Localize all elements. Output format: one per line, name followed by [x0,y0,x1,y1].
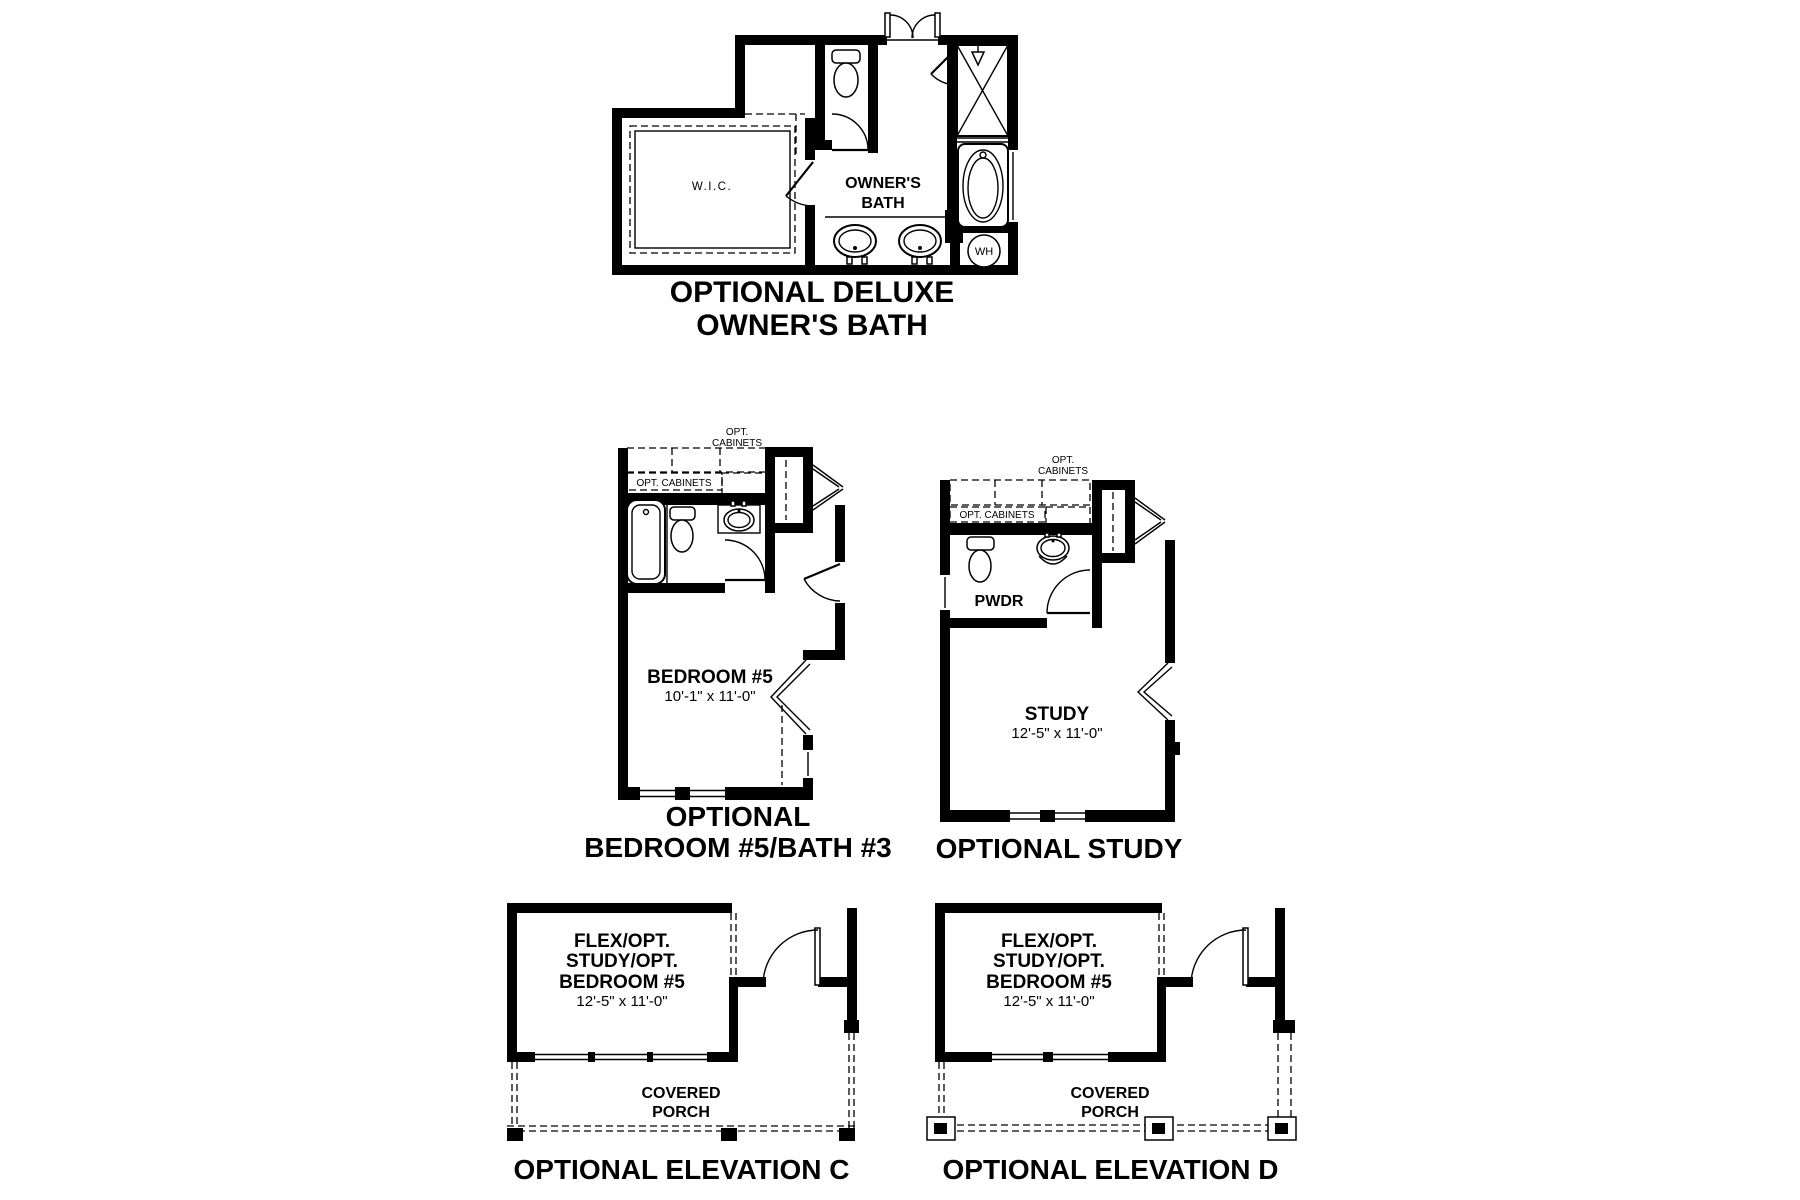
covered-porch-label-line1: COVERED [641,1085,720,1102]
bath3-sink [718,501,760,533]
toilet-room-door [832,114,868,150]
water-heater-label: WH [975,246,993,258]
flex-room-label-line2: STUDY/OPT. [993,951,1105,972]
flex-room-label-line3: BEDROOM #5 [986,972,1112,993]
double-entry-door [885,13,940,40]
pwdr-door [1047,570,1090,613]
wic-label: W.I.C. [692,181,732,193]
pwdr-toilet [967,537,994,582]
flex-room-label-line3: BEDROOM #5 [559,972,685,993]
flex-room-dims: 12'-5" x 11'-0" [576,993,667,1010]
bedroom-entry-door [804,564,840,601]
flex-room-windows [535,1052,707,1062]
garden-tub [957,138,1008,227]
cased-opening-dashed [731,913,736,977]
bedroom5-room-label: BEDROOM #5 [647,667,773,688]
opt-cabinets-label-line1: OPT. [1052,455,1074,466]
pwdr-label: PWDR [975,593,1024,610]
opt-cabinets-label-line2: CABINETS [712,438,762,449]
opt-cabinets-inline-label: OPT. CABINETS [959,510,1034,521]
covered-porch-label-line1: COVERED [1070,1085,1149,1102]
bay-window-zigzag [1138,663,1172,720]
bedroom5-room-dims: 10'-1" x 11'-0" [664,688,755,705]
tub-side-window [1008,150,1018,222]
double-chevron-door [1135,498,1165,544]
bedroom5-bath3-plan-drawing: OPT. CABINETS OPT. CABINETS BEDROOM #5 1… [610,420,860,805]
opt-cabinets-label-line1: OPT. [726,427,748,438]
study-room-label: STUDY [1025,704,1090,725]
elevation-d-caption: OPTIONAL ELEVATION D [918,1154,1303,1185]
owners-bath-caption: OPTIONAL DELUXE OWNER'S BATH [600,276,1024,342]
study-caption: OPTIONAL STUDY [929,833,1189,864]
opt-cabinets-inline-label: OPT. CABINETS [636,478,711,489]
entry-door [1191,928,1248,985]
flex-room-label-line2: STUDY/OPT. [566,951,678,972]
opt-cabinets-label-line2: CABINETS [1038,466,1088,477]
flex-room-label-line1: FLEX/OPT. [574,931,670,952]
water-heater: WH [968,235,1000,267]
study-room-dims: 12'-5" x 11'-0" [1011,725,1102,742]
owners-bath-label-line2: BATH [861,195,904,212]
bedroom5-bath3-caption: OPTIONAL BEDROOM #5/BATH #3 [555,801,921,863]
bath3-tub [627,500,667,584]
owners-bath-caption-line2: OWNER'S BATH [600,309,1024,342]
owners-bath-label-line1: OWNER'S [845,175,921,192]
elevation-d-caption-text: OPTIONAL ELEVATION D [918,1154,1303,1185]
covered-porch-label-line2: PORCH [652,1104,710,1121]
bath3-toilet [670,507,695,552]
covered-porch-label-line2: PORCH [1081,1104,1139,1121]
flex-room-dims: 12'-5" x 11'-0" [1003,993,1094,1010]
study-caption-text: OPTIONAL STUDY [929,833,1189,864]
entry-door [763,928,820,985]
elevation-d-plan-drawing: FLEX/OPT. STUDY/OPT. BEDROOM #5 12'-5" x… [925,900,1305,1150]
owners-bath-plan-drawing: WH W.I.C. OWNER'S BATH [600,10,1020,280]
cased-opening-dashed [1159,913,1164,977]
elevation-c-plan-drawing: FLEX/OPT. STUDY/OPT. BEDROOM #5 12'-5" x… [500,900,870,1150]
pwdr-sink [1037,533,1069,564]
elevation-c-caption-text: OPTIONAL ELEVATION C [489,1154,874,1185]
double-chevron-door [813,465,843,510]
study-walls [940,480,1180,822]
flex-room-label-line1: FLEX/OPT. [1001,931,1097,952]
toilet-fixture [832,50,860,97]
owners-bath-caption-line1: OPTIONAL DELUXE [600,276,1024,309]
shower [957,45,1008,136]
bath3-door [725,540,765,580]
vanity-double-sinks [825,217,947,264]
study-plan-drawing: OPT. CABINETS OPT. CABINETS PWDR STUDY 1… [935,420,1185,830]
porch-posts [507,1128,855,1141]
elevation-c-caption: OPTIONAL ELEVATION C [489,1154,874,1185]
floorplan-sheet: WH W.I.C. OWNER'S BATH OPTIONAL DELUXE O… [0,0,1800,1200]
bedroom5-caption-line2: BEDROOM #5/BATH #3 [555,832,921,863]
bedroom5-caption-line1: OPTIONAL [555,801,921,832]
